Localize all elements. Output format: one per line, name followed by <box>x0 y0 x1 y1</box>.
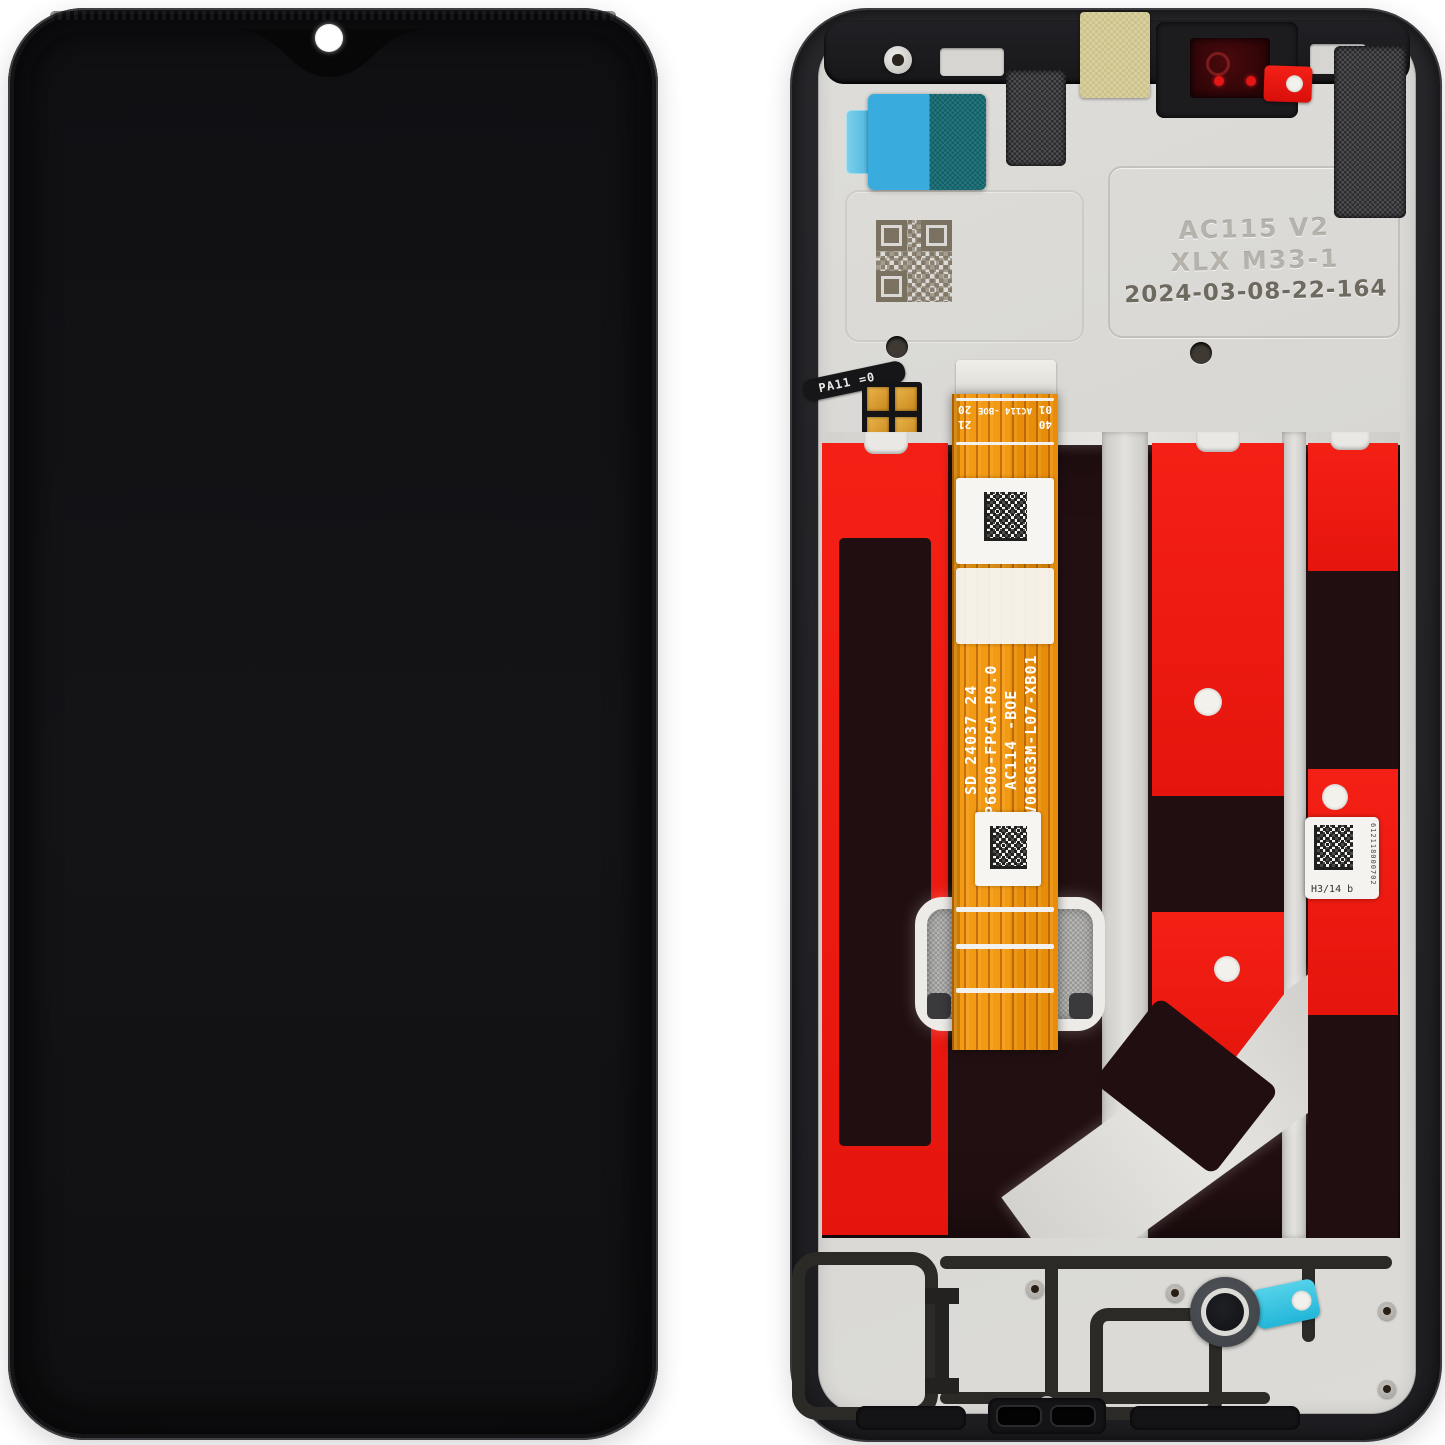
pin-row-bottom: 40 21 <box>954 417 1056 432</box>
adhesive-mid-notch <box>1196 432 1240 452</box>
serial-vertical-text: 612118000702 <box>1369 823 1377 886</box>
red-tab-hole <box>1286 75 1304 93</box>
pin-row-top: 01 AC114 -BOE 20 <box>954 402 1056 417</box>
display-back-panel: H3/14 b 612118000702 <box>822 432 1400 1238</box>
red-pull-tab <box>1263 65 1312 103</box>
marking-batch: XLX M33-1 <box>1120 242 1391 278</box>
flex-pad-line-3 <box>956 988 1054 993</box>
frame-markings: AC115 V2 XLX M33-1 2024-03-08-22-164 <box>1119 210 1391 308</box>
slot-2 <box>1052 1407 1094 1425</box>
gold-pad <box>895 387 917 411</box>
pin-20: 20 <box>958 402 971 417</box>
screw-1 <box>1026 1280 1044 1298</box>
plate-hole-right <box>1190 342 1212 364</box>
connector-part-label: AC114 -BOE <box>978 402 1032 417</box>
plate-hole-left <box>886 336 908 358</box>
camera-hole <box>1206 1293 1244 1331</box>
adhesive-left-window <box>839 538 931 1146</box>
ibeam-stem <box>935 1300 949 1382</box>
back-display-assembly: AC115 V2 XLX M33-1 2024-03-08-22-164 <box>790 8 1442 1442</box>
adhesive-right-dot <box>1322 784 1348 810</box>
top-screw-boss <box>884 46 912 74</box>
serial-code-text: H3/14 b <box>1311 884 1353 895</box>
flex-label-c <box>975 812 1041 886</box>
adhesive-mid-dot-2 <box>1214 956 1240 982</box>
adhesive-left-notch <box>864 432 908 454</box>
flex-line-top-1 <box>956 398 1054 401</box>
slot-1 <box>998 1407 1040 1425</box>
connector-dot-1 <box>1214 76 1224 86</box>
front-camera-hole <box>315 24 343 52</box>
flex-connector-text: 40 21 01 AC114 -BOE 20 <box>954 402 1056 432</box>
adhesive-mid-dot-1 <box>1194 688 1222 716</box>
front-display-assembly <box>8 8 658 1440</box>
screw-3 <box>1378 1302 1396 1320</box>
bottom-block-left <box>856 1406 966 1430</box>
flex-connector-stiffener <box>956 360 1056 396</box>
etched-qr-code <box>876 220 952 302</box>
cyan-tab-hole <box>1290 1289 1314 1313</box>
ibeam-bottom <box>925 1378 959 1394</box>
flex-pad-line-1 <box>956 907 1054 912</box>
pin-21: 21 <box>958 417 971 432</box>
earpiece-mesh <box>50 11 616 20</box>
gasket-cell-left <box>792 1252 938 1420</box>
qr-finder-bl <box>876 271 907 302</box>
connector-ring-mark <box>1206 52 1230 76</box>
gasket-vline-1 <box>1045 1256 1058 1406</box>
adhesive-right-notch <box>1330 432 1370 450</box>
flex-pad-line-2 <box>956 944 1054 949</box>
adhesive-mid-gap <box>1152 796 1284 912</box>
bottom-slot-block <box>988 1398 1106 1434</box>
pin-40: 40 <box>1039 417 1052 432</box>
screw-4 <box>1378 1380 1396 1398</box>
mesh-patch-right <box>1334 46 1406 218</box>
adhesive-strip-right-top <box>1308 443 1398 571</box>
gasket-hline-top <box>940 1256 1392 1269</box>
flex-label-a <box>956 478 1054 564</box>
serial-label: H3/14 b 612118000702 <box>1305 817 1379 899</box>
connector-window <box>1190 38 1270 98</box>
yellow-sticker <box>1080 12 1150 98</box>
flex-datamatrix-c <box>990 826 1027 869</box>
bottom-block-right <box>1130 1406 1300 1430</box>
pin-01: 01 <box>1039 402 1052 417</box>
gold-pad <box>867 387 889 411</box>
ibeam-mark <box>925 1288 959 1394</box>
product-photo: AC115 V2 XLX M33-1 2024-03-08-22-164 <box>0 0 1445 1445</box>
serial-datamatrix <box>1314 825 1353 870</box>
screw-2 <box>1166 1284 1184 1302</box>
blue-sticker <box>868 94 986 190</box>
qr-finder-tr <box>921 220 952 251</box>
connector-dot-2 <box>1246 76 1256 86</box>
front-screen <box>29 31 637 1415</box>
top-band-gap-1 <box>940 48 1004 76</box>
flex-line-top-2 <box>956 442 1054 445</box>
pad-corner-bl <box>927 993 951 1019</box>
qr-finder-tl <box>876 220 907 251</box>
pad-corner-br <box>1069 993 1093 1019</box>
adhesive-right-bottom <box>1308 1015 1398 1238</box>
adhesive-strip-mid-top <box>1152 443 1284 796</box>
adhesive-right-gap <box>1308 571 1398 769</box>
mesh-patch-center <box>1006 70 1066 166</box>
flex-datamatrix-a <box>984 492 1027 541</box>
